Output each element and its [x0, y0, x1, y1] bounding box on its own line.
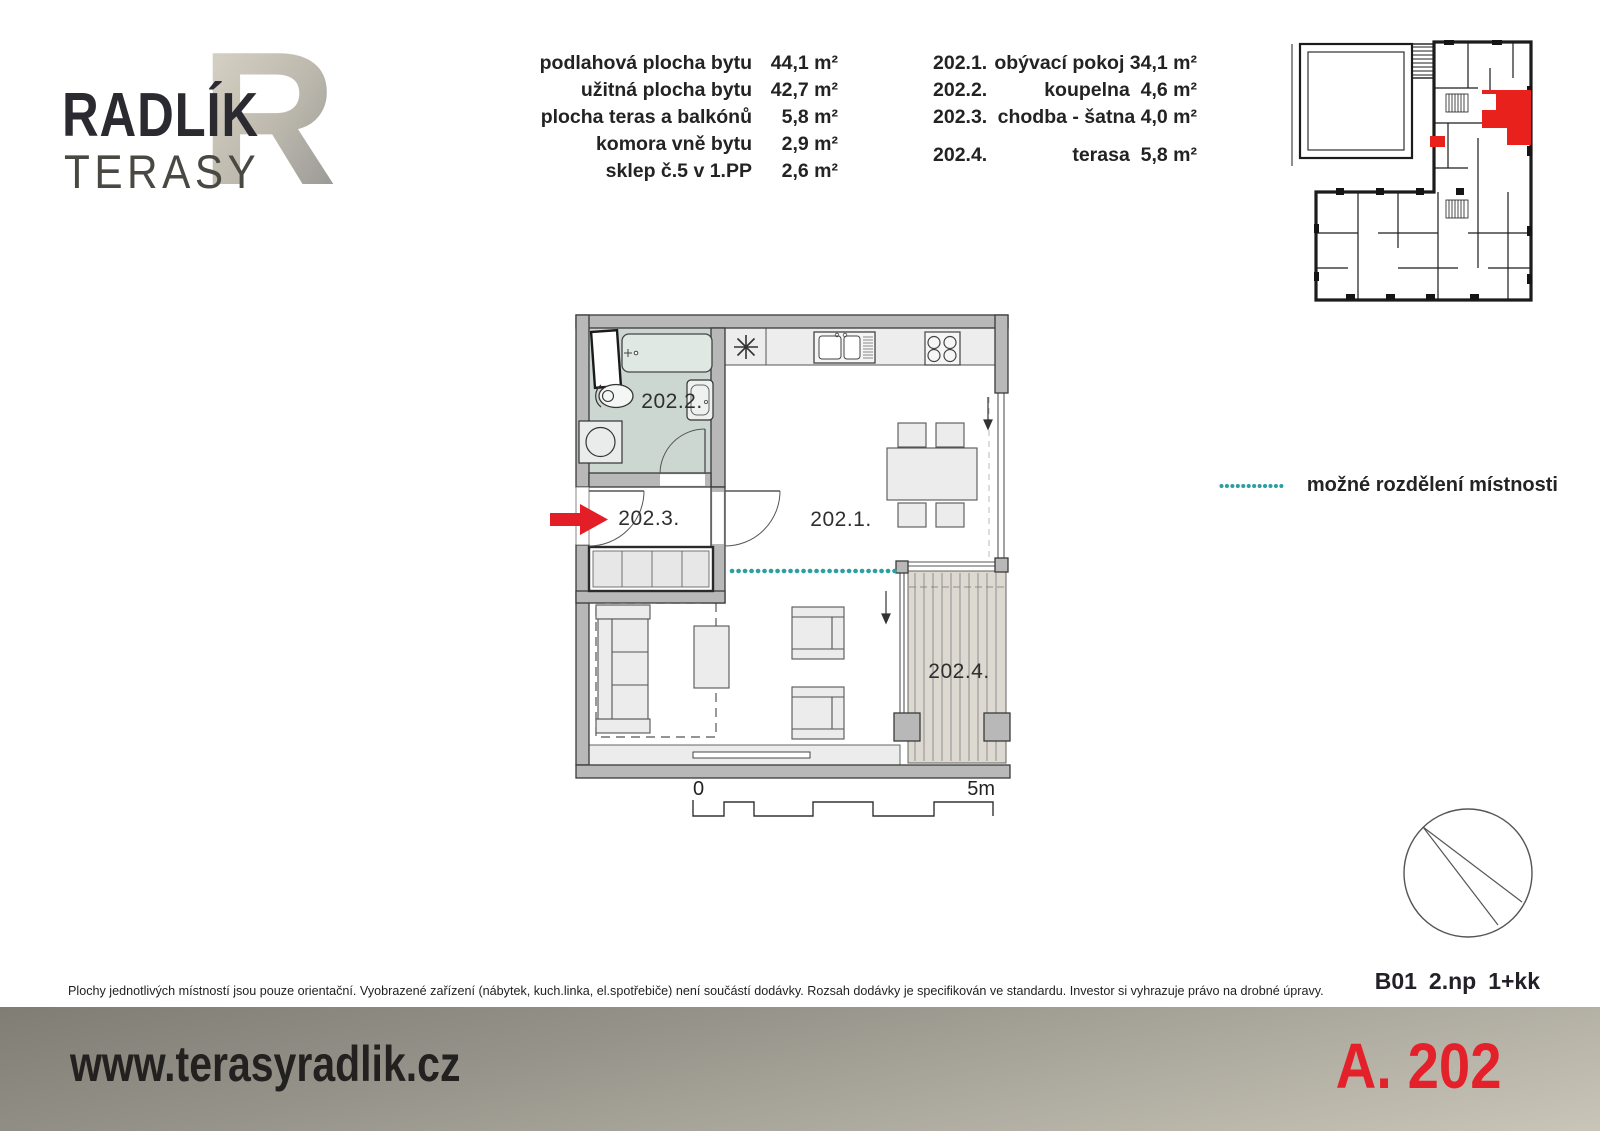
area-value: 44,1 m²: [762, 50, 838, 77]
room-row: 202.1. obývací pokoj 34,1 m²: [933, 50, 1197, 77]
room-table: 202.1. obývací pokoj 34,1 m² 202.2. koup…: [933, 50, 1197, 169]
hob-icon: [925, 332, 960, 365]
wardrobe-icon: [589, 547, 713, 591]
room-code: 202.2.: [933, 77, 991, 104]
boiler-star-icon: [734, 335, 758, 359]
site-building-outline: [1316, 42, 1531, 300]
chair-icon: [936, 423, 964, 447]
floor-plan: 202.2. 202.3. 202.1. 202.4. 0 5m: [548, 295, 1018, 830]
area-label: užitná plocha bytu: [500, 77, 752, 104]
area-label: komora vně bytu: [500, 131, 752, 158]
scale-start-label: 0: [693, 778, 704, 800]
room-label-terrace: 202.4.: [928, 660, 989, 683]
room-row: 202.4. terasa 5,8 m²: [933, 142, 1197, 169]
compass-icon: [1395, 798, 1545, 948]
chair-icon: [898, 503, 926, 527]
bathroom-door-opening: [660, 474, 705, 486]
room-code: 202.4.: [933, 142, 991, 169]
room-area: 34,1 m²: [1130, 52, 1197, 74]
room-code: 202.1.: [933, 50, 991, 77]
area-row: sklep č.5 v 1.PP 2,6 m²: [500, 158, 838, 185]
area-value: 42,7 m²: [762, 77, 838, 104]
footer: www.terasyradlik.cz A. 202: [0, 1007, 1600, 1131]
dining-table-icon: [887, 448, 977, 500]
disclaimer: Plochy jednotlivých místností jsou pouze…: [68, 984, 1218, 998]
room-name: terasa: [1072, 144, 1129, 166]
chair-icon: [936, 503, 964, 527]
area-label: sklep č.5 v 1.PP: [500, 158, 752, 185]
armchair-icon: [792, 607, 844, 659]
area-value: 2,6 m²: [762, 158, 838, 185]
scale-bar: 0 5m: [693, 778, 995, 816]
room-name-area: terasa 5,8 m²: [991, 142, 1197, 169]
room-name-area: koupelna 4,6 m²: [991, 77, 1197, 104]
room-row: 202.3. chodba - šatna 4,0 m²: [933, 104, 1197, 131]
room-name-area: chodba - šatna 4,0 m²: [991, 104, 1197, 131]
shaft: [591, 330, 621, 388]
bottom-window: [589, 745, 900, 765]
area-row: podlahová plocha bytu 44,1 m²: [500, 50, 838, 77]
coffee-table-icon: [694, 626, 729, 688]
room-area: 5,8 m²: [1141, 144, 1197, 166]
room-area: 4,6 m²: [1141, 79, 1197, 101]
unit-meta: B01 2.np 1+kk: [1355, 968, 1540, 995]
floor-label: 2.np: [1429, 968, 1476, 995]
kitchen-counter: [725, 328, 995, 365]
room-code: 202.3.: [933, 104, 991, 131]
room-name: koupelna: [1044, 79, 1130, 101]
logo-subtitle: TERASY: [64, 144, 260, 199]
logo-title: RADLÍK: [62, 80, 259, 151]
armchair-icon: [792, 687, 844, 739]
room-label-living: 202.1.: [810, 508, 871, 531]
room-label-hall: 202.3.: [618, 507, 679, 530]
area-value: 5,8 m²: [762, 104, 838, 131]
legend-label: možné rozdělení místnosti: [1307, 474, 1558, 497]
room-area: 4,0 m²: [1141, 106, 1197, 128]
room-name: obývací pokoj: [994, 52, 1124, 74]
area-value: 2,9 m²: [762, 131, 838, 158]
area-row: komora vně bytu 2,9 m²: [500, 131, 838, 158]
room-name-area: obývací pokoj 34,1 m²: [991, 50, 1197, 77]
logo: R RADLÍK TERASY: [58, 32, 358, 202]
website-text: www.terasyradlik.cz: [70, 1035, 460, 1093]
room-row: 202.2. koupelna 4,6 m²: [933, 77, 1197, 104]
area-label: podlahová plocha bytu: [500, 50, 752, 77]
site-courtyard: [1300, 44, 1412, 158]
room-name: chodba - šatna: [998, 106, 1136, 128]
kitchen-sink-icon: [814, 332, 875, 363]
site-plan: [1278, 28, 1538, 313]
legend: možné rozdělení místnosti: [1218, 474, 1558, 497]
area-table: podlahová plocha bytu 44,1 m² užitná plo…: [500, 50, 838, 185]
area-label: plocha teras a balkónů: [500, 104, 752, 131]
unit-code: A. 202: [1336, 1029, 1502, 1103]
hall-door-opening: [712, 492, 724, 544]
chair-icon: [898, 423, 926, 447]
sofa-icon: [596, 605, 650, 733]
floorplan-brochure-page: R RADLÍK TERASY podlahová plocha bytu 44…: [0, 0, 1600, 1131]
site-plan-highlight-small: [1430, 136, 1445, 147]
area-row: užitná plocha bytu 42,7 m²: [500, 77, 838, 104]
layout-label: 1+kk: [1488, 968, 1540, 995]
room-label-bathroom: 202.2.: [641, 390, 702, 413]
scale-end-label: 5m: [967, 778, 995, 800]
building-label: B01: [1375, 968, 1417, 995]
legend-dotted-line-icon: [1218, 480, 1289, 492]
site-hatch-block: [1412, 44, 1434, 78]
washing-machine-icon: [579, 421, 622, 463]
area-row: plocha teras a balkónů 5,8 m²: [500, 104, 838, 131]
